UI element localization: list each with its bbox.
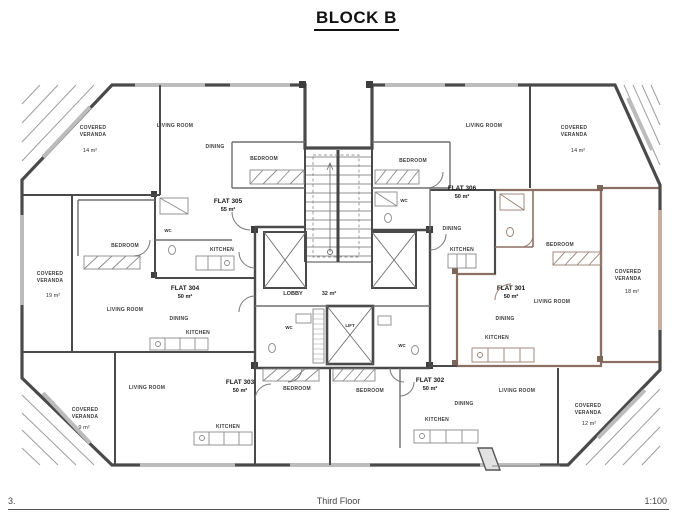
- flat-302-veranda-label2: VERANDA: [575, 410, 602, 416]
- lift: LIFT: [327, 306, 373, 364]
- flat-302-room-bedroom: BEDROOM: [356, 388, 384, 394]
- flat-303-room-kitchen: KITCHEN: [216, 424, 240, 430]
- flat-304-veranda-label1: COVERED: [37, 271, 64, 277]
- exterior-wall: [22, 85, 660, 465]
- flat-302-area: 50 m²: [423, 385, 438, 392]
- flat-306-veranda-label1: COVERED: [561, 125, 588, 131]
- flat-302-room-dining: DINING: [455, 401, 474, 407]
- scale-label: 1:100: [644, 496, 667, 506]
- flat-301-veranda-area: 18 m²: [625, 289, 639, 295]
- flat-306-area: 50 m²: [455, 193, 470, 200]
- wc-left-label: WC: [285, 325, 293, 330]
- flat-305-room-kitchen: KITCHEN: [210, 247, 234, 253]
- flat-303-room-living: LIVING ROOM: [129, 385, 165, 391]
- flat-304-room-living: LIVING ROOM: [107, 307, 143, 313]
- flat-302-wardrobe: [333, 369, 375, 381]
- building-outline: [22, 81, 660, 470]
- lobby-area: 32 m²: [322, 290, 337, 297]
- flat-301-area: 50 m²: [504, 293, 519, 300]
- flat-301-veranda-label2: VERANDA: [615, 276, 642, 282]
- flat-305-room-wc: WC: [164, 228, 172, 233]
- flat-301-kitchen-counter: [472, 348, 534, 362]
- windows: [22, 85, 660, 465]
- flat-304-room-kitchen: KITCHEN: [186, 330, 210, 336]
- flat-306-veranda-area: 14 m²: [571, 148, 585, 154]
- lift-shafts: [264, 232, 416, 288]
- flat-305-veranda-area: 14 m²: [83, 148, 97, 154]
- flat-306-wardrobe: [375, 170, 419, 184]
- flat-301-room-dining: DINING: [496, 316, 515, 322]
- flat-305: LIVING ROOM DINING BEDROOM KITCHEN WC FL…: [22, 85, 305, 278]
- columns-highlight: [452, 185, 603, 366]
- flat-306-room-bedroom: BEDROOM: [399, 158, 427, 164]
- flat-306-veranda-label2: VERANDA: [561, 132, 588, 138]
- floor-plan-drawing: LIFT WC WC LOBBY 32 m²: [0, 0, 677, 532]
- flat-302-label: FLAT 302: [416, 377, 445, 384]
- flat-305-room-bedroom: BEDROOM: [250, 156, 278, 162]
- floor-label: Third Floor: [0, 496, 677, 506]
- flat-302-kitchen-counter: [414, 430, 478, 443]
- central-core: LIFT WC WC LOBBY 32 m²: [239, 148, 430, 382]
- flat-302: BEDROOM DINING KITCHEN LIVING ROOM FLAT …: [333, 366, 601, 465]
- flat-302-veranda-label1: COVERED: [575, 403, 602, 409]
- flat-304-room-bedroom: BEDROOM: [111, 243, 139, 249]
- flat-303-veranda-label2: VERANDA: [72, 414, 99, 420]
- flat-304-wardrobe: [84, 256, 140, 269]
- flat-303-veranda-area: 9 m²: [78, 425, 89, 431]
- flat-304-room-dining: DINING: [170, 316, 189, 322]
- flat-304-label: FLAT 304: [171, 285, 200, 292]
- flat-305-veranda-label2: VERANDA: [80, 132, 107, 138]
- flat-301-region: [457, 190, 601, 366]
- flat-306-kitchen-counter: [448, 254, 476, 268]
- corner-hatching: [22, 85, 660, 465]
- flat-306-room-wc: WC: [400, 198, 408, 203]
- flat-304: BEDROOM LIVING ROOM DINING KITCHEN FLAT …: [22, 195, 255, 352]
- flat-301-label: FLAT 301: [497, 285, 526, 292]
- flat-306-room-kitchen: KITCHEN: [450, 247, 474, 253]
- flat-305-wardrobe: [250, 170, 304, 184]
- flat-303-kitchen-counter: [194, 432, 252, 445]
- flat-305-room-dining: DINING: [206, 144, 225, 150]
- flat-306-room-dining: DINING: [443, 226, 462, 232]
- flat-306-room-living: LIVING ROOM: [466, 123, 502, 129]
- floor-plan-sheet: BLOCK B: [0, 0, 677, 532]
- flat-301-room-living: LIVING ROOM: [534, 299, 570, 305]
- flat-304-veranda-label2: VERANDA: [37, 278, 64, 284]
- wc-rooms: WC WC: [255, 306, 430, 363]
- wc-right-label: WC: [398, 343, 406, 348]
- flat-301-room-bedroom: BEDROOM: [546, 242, 574, 248]
- flat-306-label: FLAT 306: [448, 185, 477, 192]
- flat-303-wardrobe: [263, 369, 319, 381]
- flat-302-room-kitchen: KITCHEN: [425, 417, 449, 423]
- flat-302-veranda-area: 12 m²: [582, 421, 596, 427]
- flat-302-room-living: LIVING ROOM: [499, 388, 535, 394]
- flat-304-area: 50 m²: [178, 293, 193, 300]
- flat-305-kitchen-counter: [196, 256, 234, 270]
- flat-303: LIVING ROOM BEDROOM KITCHEN FLAT 303 50 …: [72, 352, 330, 465]
- flat-304-kitchen-counter: [150, 338, 208, 350]
- flat-301-wardrobe: [553, 252, 601, 265]
- flat-303-room-bedroom: BEDROOM: [283, 386, 311, 392]
- flat-303-veranda-label1: COVERED: [72, 407, 99, 413]
- footer-divider: [8, 509, 669, 510]
- flat-301-veranda-region: [601, 188, 660, 362]
- flat-305-label: FLAT 305: [214, 198, 243, 205]
- lift-label: LIFT: [345, 323, 355, 328]
- flat-303-label: FLAT 303: [226, 379, 255, 386]
- flat-303-area: 50 m²: [233, 387, 248, 394]
- staircase: [306, 150, 371, 262]
- flat-305-area: 55 m²: [221, 206, 236, 213]
- flat-301: BEDROOM LIVING ROOM DINING KITCHEN FLAT …: [472, 190, 641, 362]
- lobby-label: LOBBY: [283, 291, 303, 297]
- flat-304-veranda-area: 19 m²: [46, 293, 60, 299]
- flat-305-veranda-label1: COVERED: [80, 125, 107, 131]
- flat-305-room-living: LIVING ROOM: [157, 123, 193, 129]
- flat-301-room-kitchen: KITCHEN: [485, 335, 509, 341]
- flat-301-veranda-label1: COVERED: [615, 269, 642, 275]
